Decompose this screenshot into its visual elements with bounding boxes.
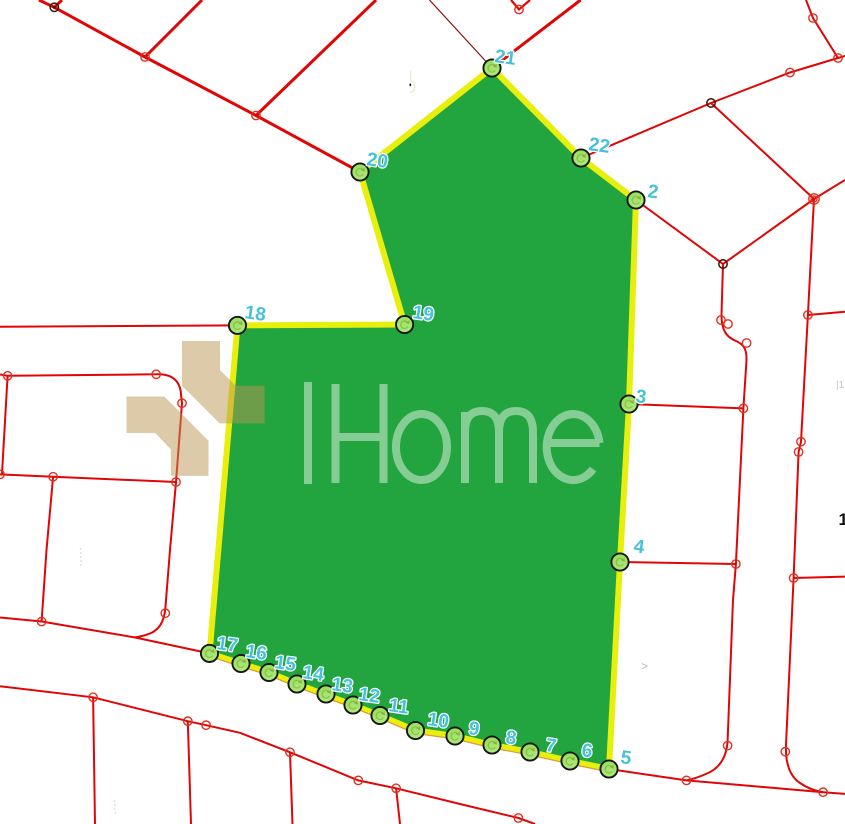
svg-text:|1: |1	[836, 380, 845, 391]
svg-text:>: >	[641, 659, 648, 673]
svg-text:21: 21	[493, 46, 517, 70]
svg-text:18: 18	[243, 302, 267, 326]
svg-text:15: 15	[273, 652, 297, 676]
svg-text:19: 19	[411, 302, 435, 326]
svg-text:14: 14	[301, 662, 325, 686]
svg-text:20: 20	[365, 149, 389, 173]
svg-text:13: 13	[330, 674, 354, 698]
svg-text:1: 1	[839, 510, 845, 529]
svg-text:22: 22	[587, 134, 611, 158]
svg-text:16: 16	[244, 641, 268, 665]
svg-text:10: 10	[426, 709, 450, 733]
svg-text:12: 12	[357, 684, 381, 708]
svg-text:17: 17	[215, 633, 239, 657]
svg-text:11: 11	[387, 695, 410, 719]
